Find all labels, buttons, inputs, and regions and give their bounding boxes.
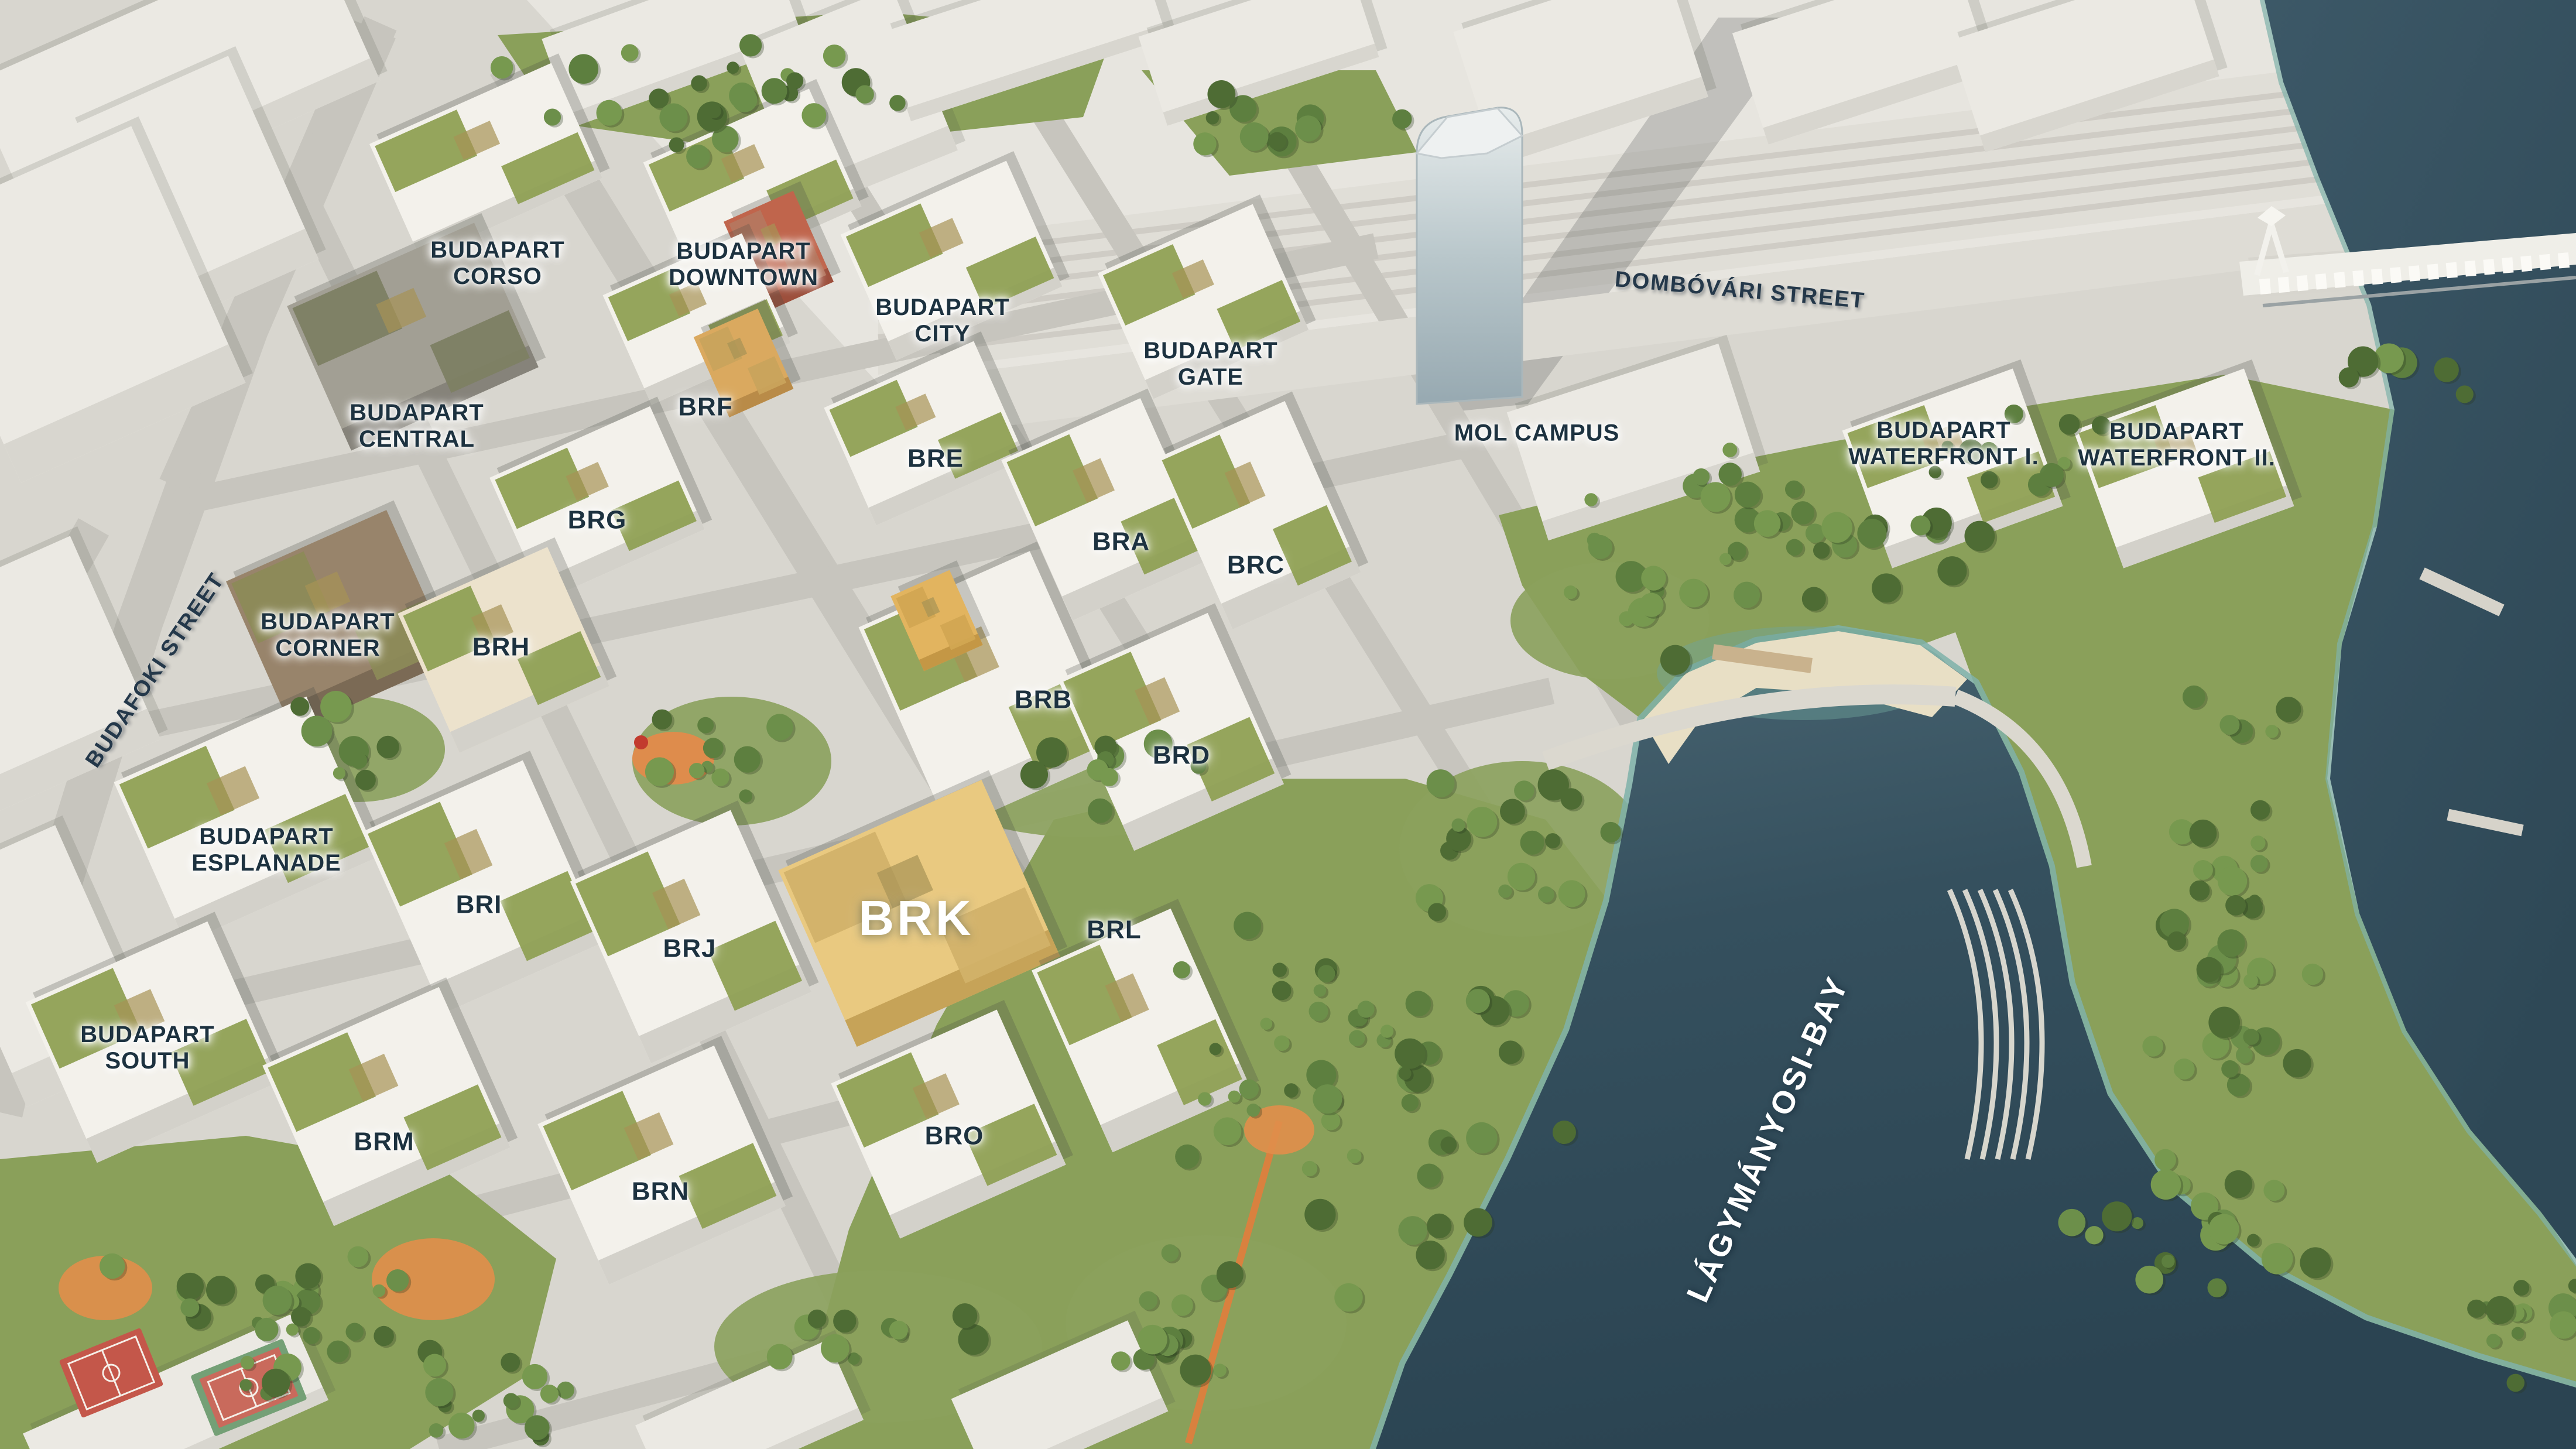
label-budapart-waterfront-1: BUDAPART WATERFRONT I. (1848, 417, 2039, 470)
map-canvas: BUDAPART CORSO BUDAPART DOWNTOWN BUDAPAR… (0, 0, 2576, 1449)
label-brj: BRJ (663, 934, 716, 962)
label-dombovari-street: DOMBÓVÁRI STREET (1614, 267, 1866, 314)
label-budapart-city: BUDAPART CITY (875, 294, 1009, 347)
label-budafoki-street: BUDAFOKI STREET (81, 568, 229, 772)
label-budapart-downtown: BUDAPART DOWNTOWN (669, 238, 818, 291)
label-budapart-corner: BUDAPART CORNER (261, 609, 395, 662)
label-budapart-esplanade: BUDAPART ESPLANADE (191, 824, 341, 876)
label-bro: BRO (925, 1121, 984, 1150)
label-budapart-gate: BUDAPART GATE (1143, 338, 1277, 390)
label-brf: BRF (678, 392, 732, 421)
label-budapart-central: BUDAPART CENTRAL (350, 400, 484, 453)
label-brh: BRH (472, 632, 530, 661)
label-brc: BRC (1227, 550, 1284, 579)
label-mol-campus: MOL CAMPUS (1454, 420, 1620, 447)
label-bra: BRA (1092, 527, 1150, 556)
label-brl: BRL (1087, 915, 1141, 944)
label-brk-highlight: BRK (859, 890, 974, 946)
label-brm: BRM (354, 1127, 414, 1156)
label-brd: BRD (1153, 741, 1210, 769)
label-bri: BRI (456, 890, 502, 919)
label-lagymanyosi-bay: LÁGYMÁNYOSI-BAY (1680, 970, 1856, 1307)
label-brg: BRG (568, 505, 627, 534)
label-brb: BRB (1015, 685, 1072, 714)
label-budapart-waterfront-2: BUDAPART WATERFRONT II. (2078, 419, 2276, 471)
labels-layer: BUDAPART CORSO BUDAPART DOWNTOWN BUDAPAR… (0, 0, 2576, 1449)
label-bre: BRE (907, 444, 964, 472)
label-brn: BRN (632, 1177, 689, 1205)
label-budapart-south: BUDAPART SOUTH (80, 1022, 214, 1074)
label-budapart-corso: BUDAPART CORSO (430, 237, 564, 290)
